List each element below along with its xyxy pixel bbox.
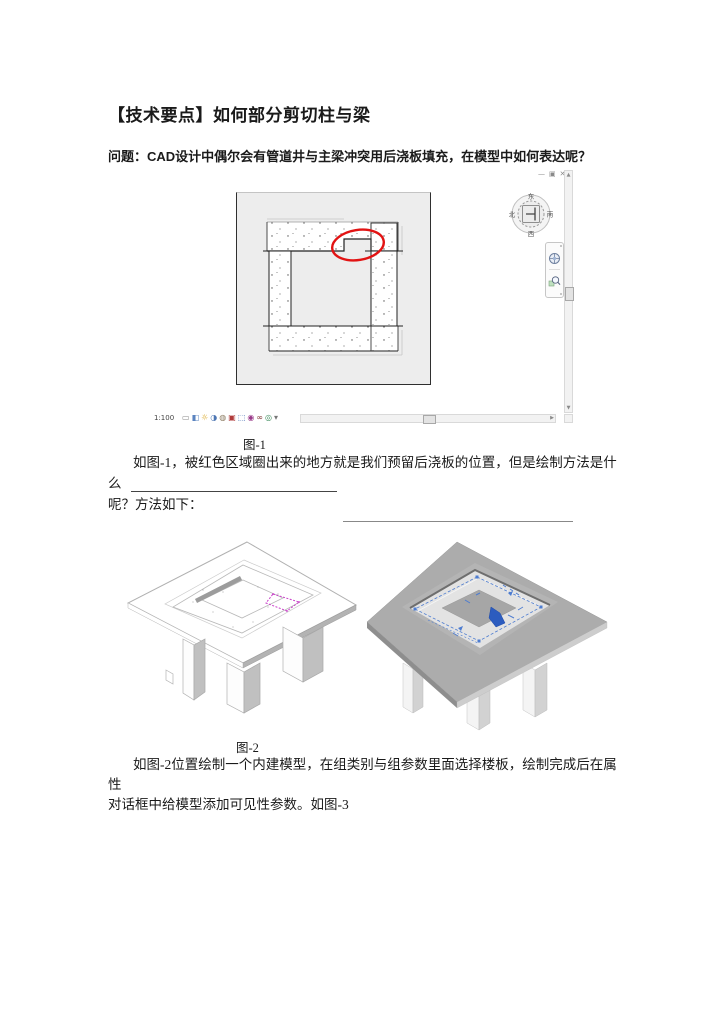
navbar-handle-dot2 [560,293,562,295]
method-underline [131,491,337,492]
drawing-canvas [236,192,431,385]
bottom-beam [263,326,403,355]
paragraph-1-line-2: 呢？方法如下： [108,494,620,515]
paragraph-1: 如图-1，被红色区域圈出来的地方就是我们预留后浇板的位置，但是绘制方法是什么 呢… [108,452,620,515]
steering-wheel-icon [548,252,561,265]
more-icon: ▾ [274,413,278,423]
view-control-bar: 1:100 ▭ ◧ ☼ ◑ ◍ ▣ ⬚ ◉ ∞ ◎ ▾ ▶ [152,413,564,424]
navigation-bar [545,242,564,298]
crop-view-icon: ▣ [228,413,236,423]
restore-icon: ▣ [549,170,556,178]
paragraph-2: 如图-2位置绘制一个内建模型，在组类别与组参数里面选择楼板，绘制完成后在属性 对… [108,755,620,815]
compass-label-east: 东 [528,192,535,201]
view-control-icons: ▭ ◧ ☼ ◑ ◍ ▣ ⬚ ◉ ∞ ◎ ▾ [182,413,278,423]
figure2-caption: 图-2 [236,737,259,756]
scroll-up-icon: ▲ [565,172,572,178]
scroll-right-icon: ▶ [550,415,554,421]
paragraph-2-line-2: 对话框中给模型添加可见性参数。如图-3 [108,795,620,815]
navbar-handle-dot [560,245,562,247]
shadows-icon: ◑ [210,413,217,423]
figure2-wireframe-view[interactable] [103,532,373,747]
horizontal-scroll-thumb [423,415,436,424]
reveal-hidden-icon: ◎ [265,413,272,423]
figure2-shaded-view[interactable] [358,515,630,747]
compass-label-north: 北 [509,211,516,219]
paragraph-2-line-1: 如图-2位置绘制一个内建模型，在组类别与组参数里面选择楼板，绘制完成后在属性 [108,755,620,795]
window-controls: — ▣ ✕ [538,170,566,178]
compass-label-south: 南 [547,210,554,219]
figure1-revit-screenshot[interactable]: — ▣ ✕ [152,170,576,432]
plan-view-drawing [237,193,430,384]
compass-label-west: 西 [528,230,535,238]
figure1-caption: 图-1 [243,434,266,453]
right-column [365,251,403,326]
rendering-icon: ◍ [219,413,226,423]
paragraph-1-line-1: 如图-1，被红色区域圈出来的地方就是我们预留后浇板的位置，但是绘制方法是什么 [108,452,620,494]
document-page: 【技术要点】如何部分剪切柱与梁 问题：CAD设计中偶尔会有管道井与主梁冲突用后浇… [0,0,724,1024]
zoom-icon [548,275,561,288]
view-compass: 东 南 西 北 [507,190,555,238]
scroll-down-icon: ▼ [565,405,572,411]
minimize-icon: — [538,170,545,178]
detail-level-icon: ▭ [182,413,190,423]
visual-style-icon: ◧ [192,413,200,423]
vertical-scroll-thumb [565,287,574,301]
scale-indicator: 1:100 [154,414,174,422]
scrollbar-corner [564,414,573,423]
page-title: 【技术要点】如何部分剪切柱与梁 [108,101,371,126]
horizontal-scrollbar[interactable]: ▶ [300,414,556,423]
navbar-divider [549,269,560,270]
question-line: 问题：CAD设计中偶尔会有管道井与主梁冲突用后浇板填充，在模型中如何表达呢？ [108,146,591,165]
lock-3d-icon: ◉ [247,413,254,423]
left-column [263,251,297,326]
crop-region-icon: ⬚ [238,413,246,423]
vertical-scrollbar[interactable]: ▲ ▼ [564,170,573,413]
temp-hide-icon: ∞ [256,413,263,423]
sun-path-icon: ☼ [201,413,208,423]
